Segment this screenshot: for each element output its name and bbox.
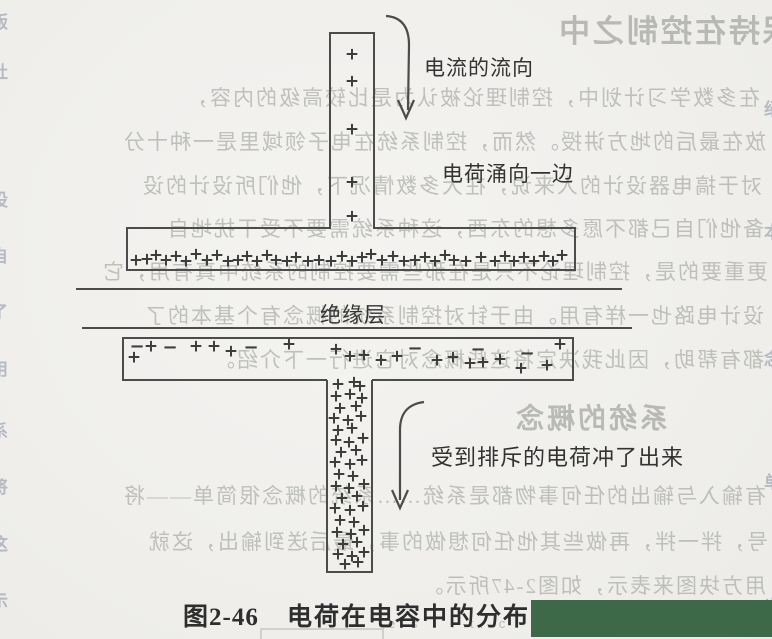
charge-surge-label: 电荷涌向一边 [442,158,574,188]
plus-charge-symbol: + [345,74,359,91]
plus-charge-symbol: + [553,337,567,354]
plus-charge-symbol: + [540,358,554,375]
figure-caption-title: 电荷在电容中的分布 [287,597,530,633]
plus-charge-symbol: + [390,349,404,366]
green-redaction-box [531,600,772,637]
plus-charge-symbol: + [345,47,359,64]
plus-charge-symbol: + [446,350,460,367]
minus-charge-symbol: − [243,339,258,357]
plus-charge-symbol: + [127,350,141,367]
plus-charge-symbol: + [144,339,158,356]
plus-charge-symbol: + [207,339,221,356]
minus-charge-symbol: − [162,339,177,357]
plus-charge-symbol: + [474,250,488,267]
plus-charge-symbol: + [493,352,507,369]
current-flow-label: 电流的流向 [424,52,534,82]
plus-charge-symbol: + [430,353,444,370]
plus-charge-symbol: + [345,122,359,139]
plus-charge-symbol: + [555,248,569,265]
plus-charge-symbol: + [351,555,365,572]
book-page: 保持在控制之中在多数学习计划中，控制理论被认为是比较高级的内容，放在最后的地方讲… [0,0,772,639]
plus-charge-symbol: + [459,254,473,271]
minus-charge-symbol: − [519,345,534,363]
insulation-layer-label: 绝缘层 [320,299,386,329]
plus-charge-symbol: + [329,342,343,359]
minus-charge-symbol: − [470,341,485,359]
minus-charge-symbol: − [407,340,422,358]
figure-caption-number: 图2-46 [183,597,259,633]
plus-charge-symbol: + [343,349,357,366]
charge-symbols-layer: ++++++++++++++++++++++++++++++++++++++++… [0,0,772,639]
plus-charge-symbol: + [224,344,238,361]
plus-charge-symbol: + [189,339,203,356]
repelled-charge-label: 受到排斥的电荷冲了出来 [431,440,684,472]
plus-charge-symbol: + [345,209,359,226]
plus-charge-symbol: + [282,337,296,354]
plus-charge-symbol: + [357,348,371,365]
plus-charge-symbol: + [345,175,359,192]
plus-charge-symbol: + [374,353,388,370]
